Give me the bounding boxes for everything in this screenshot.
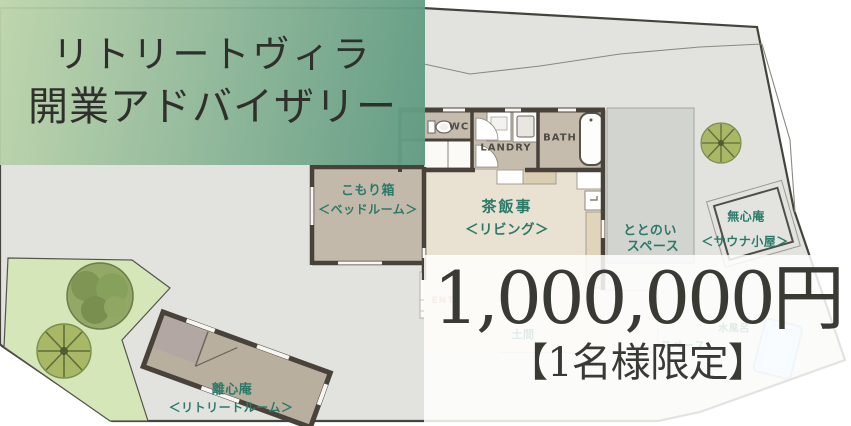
room-label-totonoi-type: スペース <box>627 236 679 255</box>
banner-title-line1: リトリートヴィラ <box>53 31 373 79</box>
room-label-sauna-name: 無心庵 <box>727 208 765 225</box>
fixture-label-bath: BATH <box>543 133 577 144</box>
fixture-label-wc: WC <box>449 122 469 133</box>
washer-icon <box>513 111 538 142</box>
room-label-living-type: ＜リビング＞ <box>465 218 549 238</box>
room-label-bedroom-type: ＜ベッドルーム＞ <box>318 201 418 218</box>
banner-title-line2: 開業アドバイザリー <box>28 80 397 134</box>
bathtub-icon <box>580 113 603 165</box>
palm-tree-icon <box>701 123 741 163</box>
promo-image: こもり箱 ＜ベッドルーム＞ 茶飯事 ＜リビング＞ ととのい スペース 無心庵 ＜… <box>0 0 851 426</box>
price-text: 1,000,000円 <box>424 260 851 338</box>
limit-text: 【1名様限定】 <box>424 340 851 386</box>
room-label-sauna-type: ＜サウナ小屋＞ <box>701 233 789 250</box>
room-label-retreat-name: 離心庵 <box>212 379 253 398</box>
price-block: 1,000,000円 【1名様限定】 <box>424 260 851 386</box>
bush-tree-icon <box>67 263 133 329</box>
palm-tree-icon <box>37 324 91 378</box>
fixture-label-laundry: LANDRY <box>480 143 531 154</box>
room-label-bedroom-name: こもり箱 <box>341 180 395 199</box>
title-banner: リトリートヴィラ 開業アドバイザリー <box>0 0 425 165</box>
room-label-retreat-type: ＜リトリートルーム＞ <box>169 399 294 416</box>
room-label-living-name: 茶飯事 <box>481 196 532 217</box>
